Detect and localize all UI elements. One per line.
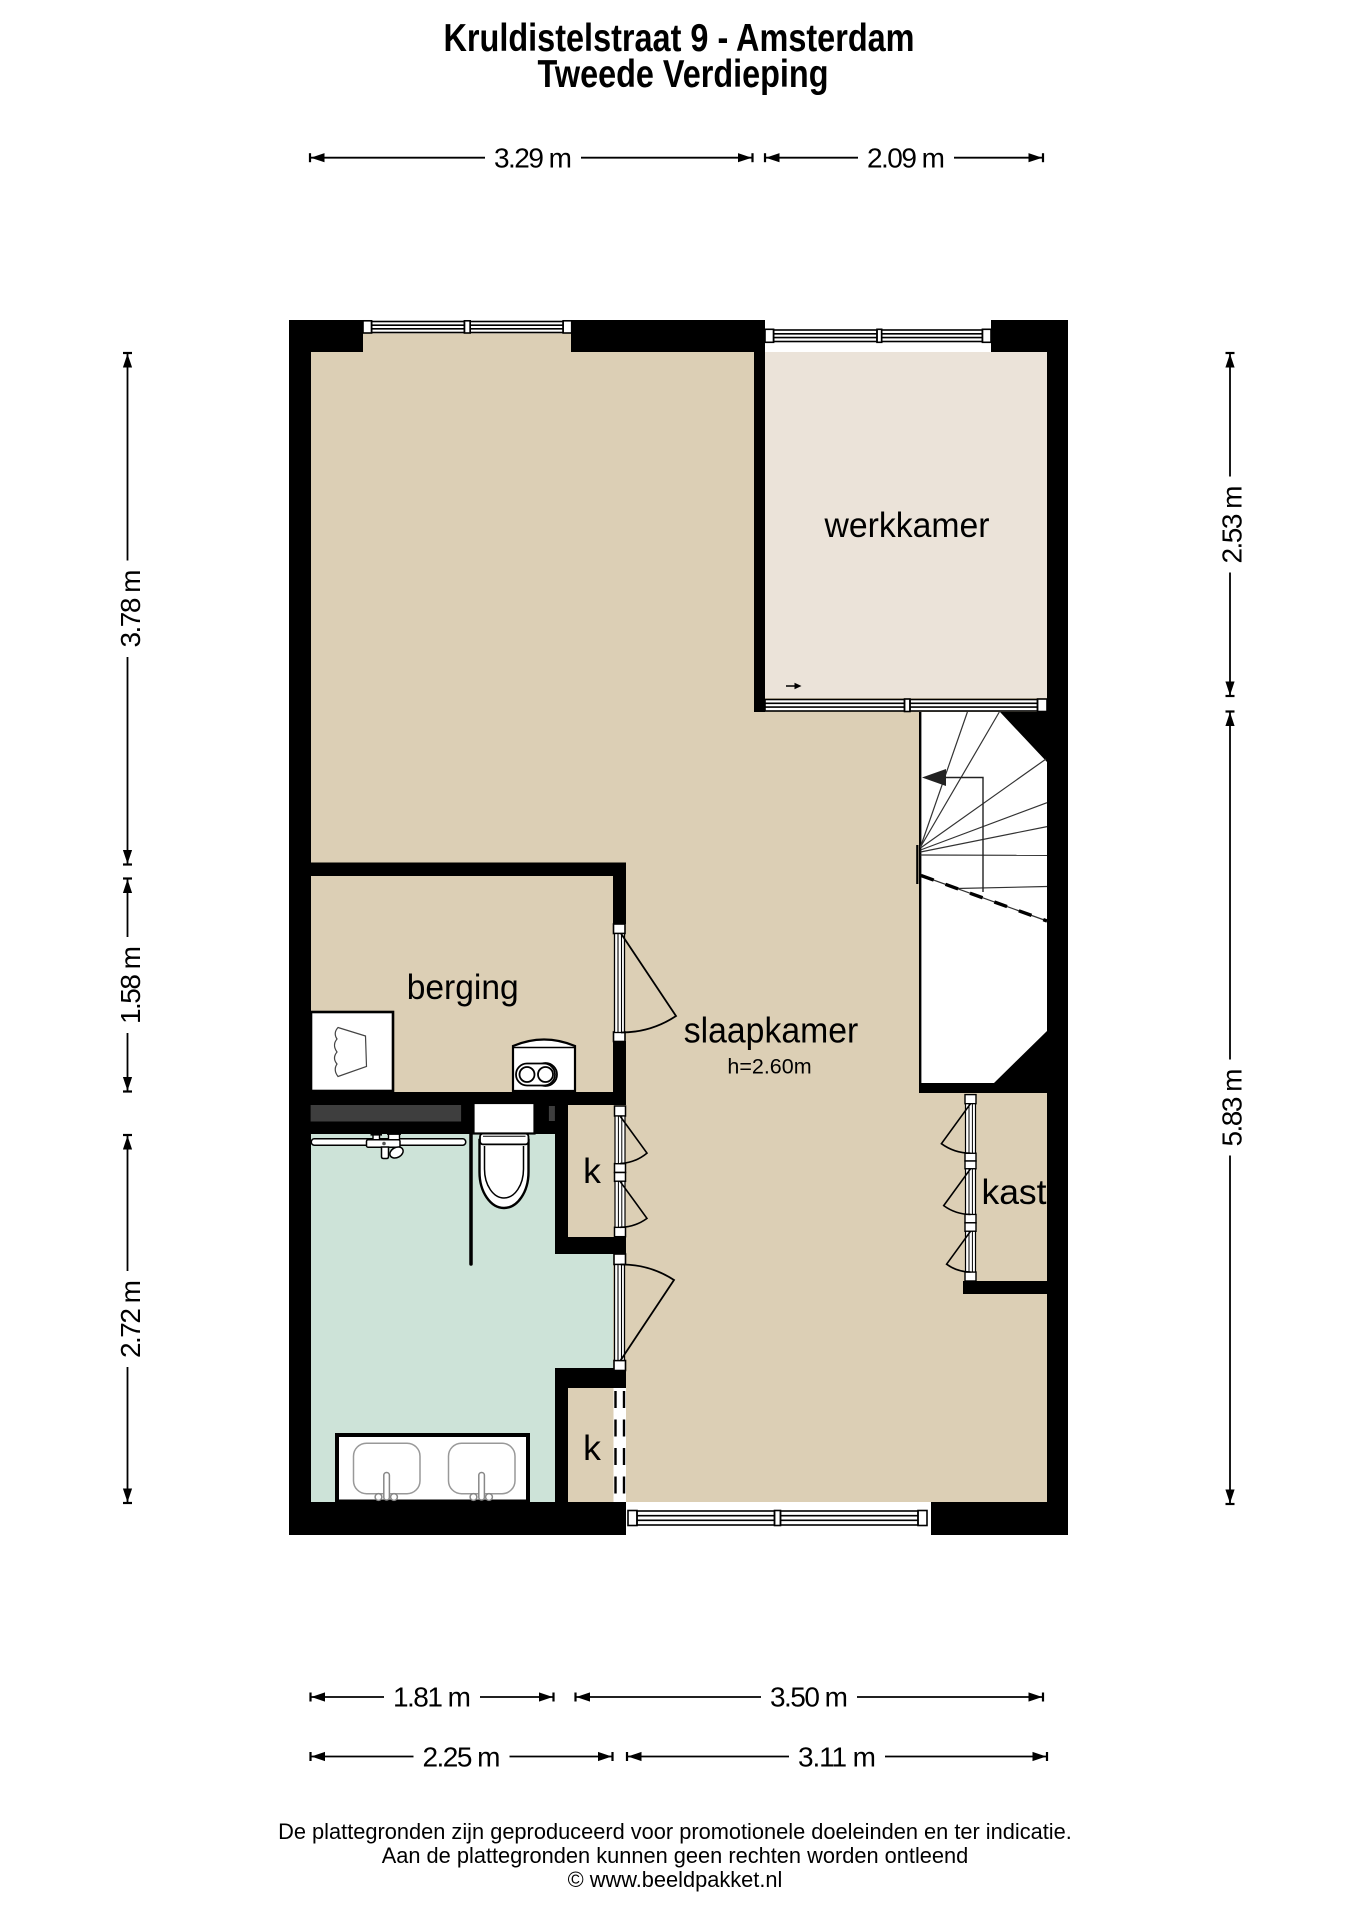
svg-text:berging: berging	[407, 967, 519, 1007]
svg-text:Tweede Verdieping: Tweede Verdieping	[538, 53, 829, 96]
svg-text:h=2.60m: h=2.60m	[727, 1055, 811, 1079]
svg-text:2.72 m: 2.72 m	[115, 1280, 146, 1358]
svg-text:3.11 m: 3.11 m	[798, 1741, 876, 1772]
svg-text:k: k	[583, 1151, 601, 1191]
svg-text:2.53 m: 2.53 m	[1217, 486, 1248, 564]
svg-text:De plattegronden zijn geproduc: De plattegronden zijn geproduceerd voor …	[278, 1819, 1072, 1844]
svg-text:kast: kast	[981, 1172, 1046, 1212]
svg-text:3.29 m: 3.29 m	[494, 143, 572, 174]
svg-text:3.78 m: 3.78 m	[115, 570, 146, 648]
svg-text:slaapkamer: slaapkamer	[684, 1010, 859, 1051]
svg-text:3.50 m: 3.50 m	[770, 1682, 848, 1713]
svg-text:2.25 m: 2.25 m	[423, 1741, 501, 1772]
svg-text:5.83 m: 5.83 m	[1217, 1069, 1248, 1147]
svg-text:1.81 m: 1.81 m	[393, 1682, 471, 1713]
svg-text:1.58 m: 1.58 m	[115, 946, 146, 1024]
svg-text:Aan de plattegronden kunnen ge: Aan de plattegronden kunnen geen rechten…	[382, 1843, 969, 1868]
svg-text:werkkamer: werkkamer	[824, 506, 990, 545]
svg-text:© www.beeldpakket.nl: © www.beeldpakket.nl	[568, 1867, 783, 1892]
svg-text:2.09 m: 2.09 m	[867, 143, 945, 174]
svg-text:k: k	[583, 1428, 601, 1468]
